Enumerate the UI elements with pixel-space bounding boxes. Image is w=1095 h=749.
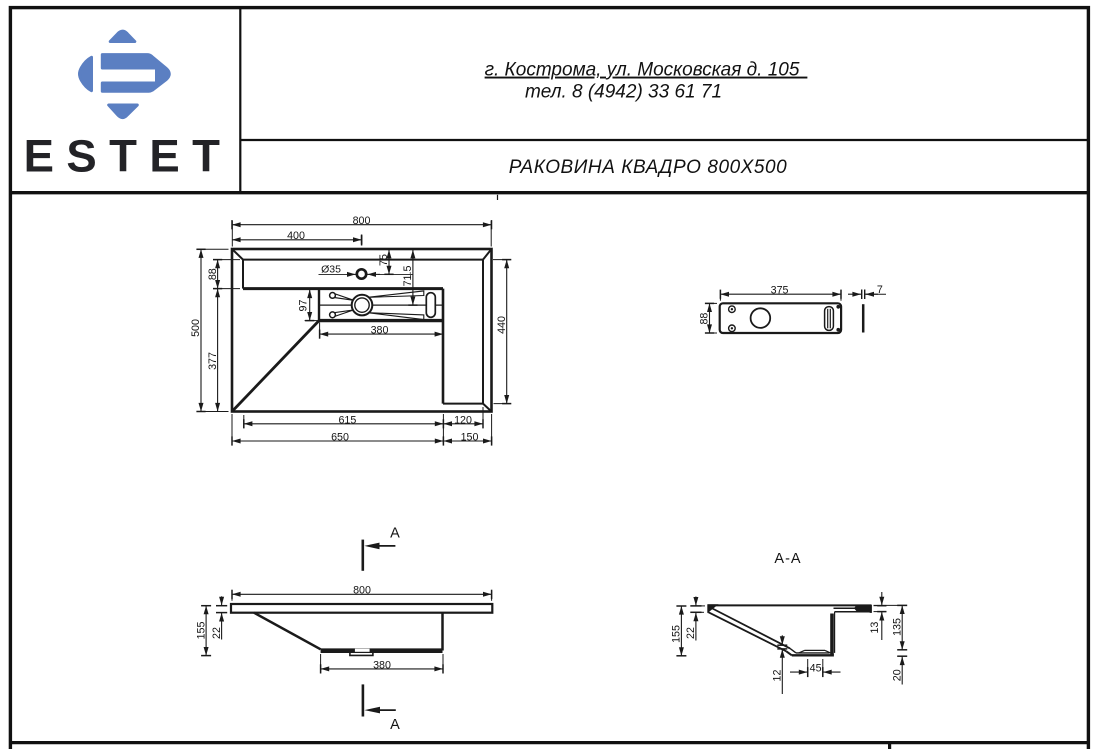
svg-text:20: 20 bbox=[891, 669, 903, 681]
svg-text:А-А: А-А bbox=[774, 551, 801, 567]
svg-text:7: 7 bbox=[877, 284, 883, 296]
svg-text:615: 615 bbox=[338, 414, 356, 426]
svg-text:ESTET: ESTET bbox=[24, 131, 233, 182]
svg-text:135: 135 bbox=[891, 618, 903, 636]
svg-text:500: 500 bbox=[190, 319, 202, 337]
svg-text:тел. 8 (4942) 33 61 71: тел. 8 (4942) 33 61 71 bbox=[525, 81, 722, 102]
svg-text:13: 13 bbox=[869, 622, 881, 634]
svg-text:800: 800 bbox=[353, 585, 371, 597]
svg-text:380: 380 bbox=[371, 325, 389, 337]
svg-text:А: А bbox=[390, 526, 400, 542]
svg-text:375: 375 bbox=[771, 285, 789, 297]
svg-text:377: 377 bbox=[207, 352, 219, 370]
svg-text:150: 150 bbox=[461, 432, 479, 444]
svg-text:45: 45 bbox=[810, 663, 822, 675]
svg-text:120: 120 bbox=[454, 414, 472, 426]
svg-text:22: 22 bbox=[211, 627, 223, 639]
svg-text:22: 22 bbox=[685, 627, 697, 639]
svg-text:440: 440 bbox=[496, 316, 508, 334]
svg-text:650: 650 bbox=[331, 432, 349, 444]
svg-text:88: 88 bbox=[699, 313, 711, 325]
svg-text:РАКОВИНА КВАДРО 800X500: РАКОВИНА КВАДРО 800X500 bbox=[509, 157, 788, 178]
svg-text:380: 380 bbox=[373, 659, 391, 671]
svg-text:88: 88 bbox=[207, 268, 219, 280]
svg-text:Ø35: Ø35 bbox=[321, 264, 341, 276]
svg-text:97: 97 bbox=[298, 300, 310, 312]
svg-text:155: 155 bbox=[671, 625, 683, 643]
svg-text:75: 75 bbox=[378, 254, 390, 266]
svg-text:12: 12 bbox=[772, 670, 784, 682]
svg-text:А: А bbox=[390, 717, 400, 733]
svg-text:71.5: 71.5 bbox=[402, 266, 414, 287]
svg-text:800: 800 bbox=[353, 215, 371, 227]
svg-text:г. Кострома, ул. Московская д.: г. Кострома, ул. Московская д. 105 bbox=[485, 60, 808, 81]
svg-text:155: 155 bbox=[195, 622, 207, 640]
svg-text:400: 400 bbox=[287, 230, 305, 242]
